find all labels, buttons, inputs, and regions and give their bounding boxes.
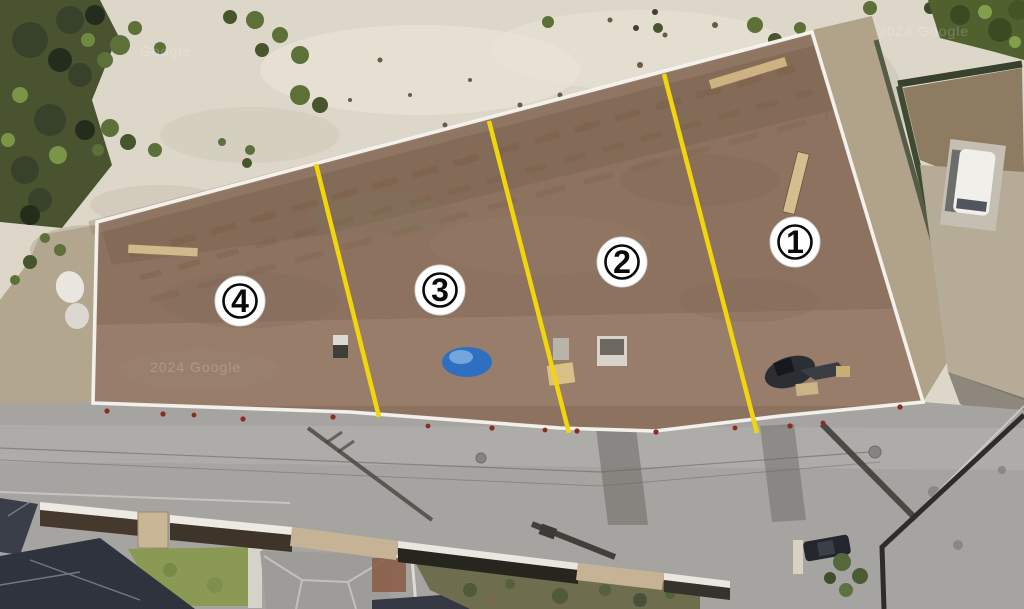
watermark-top-right: 2024 Google (878, 23, 969, 39)
lot-marker-1: 1 (770, 217, 820, 267)
lot-marker-3: 3 (415, 265, 465, 315)
manhole (476, 453, 486, 463)
lot-1-number: 1 (786, 224, 804, 260)
manhole (998, 466, 1006, 474)
blue-tarp-highlight (449, 350, 473, 364)
wall-piece (793, 540, 803, 574)
dirt-yard (372, 558, 406, 592)
path-strip (248, 548, 262, 608)
gate-pillar (138, 512, 168, 548)
lot-3-number: 3 (431, 272, 449, 308)
watermark-top-left: Google (140, 43, 191, 59)
white-van (940, 139, 1006, 231)
bush (852, 568, 868, 584)
bush (833, 553, 851, 571)
watermark-center: 2024 Google (150, 359, 241, 375)
manhole (869, 446, 881, 458)
lot-2-number: 2 (613, 244, 631, 280)
concrete-pad (597, 336, 627, 366)
lot-marker-4: 4 (215, 276, 265, 326)
aerial-photo: 1 2 3 4 Google 2024 Google 2024 Google (0, 0, 1024, 609)
small-equipment (333, 335, 348, 358)
bush (824, 572, 836, 584)
aerial-photo-canvas: 1 2 3 4 Google 2024 Google 2024 Google (0, 0, 1024, 609)
lot-marker-2: 2 (597, 237, 647, 287)
white-stone (65, 303, 89, 329)
bush (839, 583, 853, 597)
manhole (953, 540, 963, 550)
material-stack (553, 338, 569, 360)
lot-4-number: 4 (231, 283, 249, 319)
